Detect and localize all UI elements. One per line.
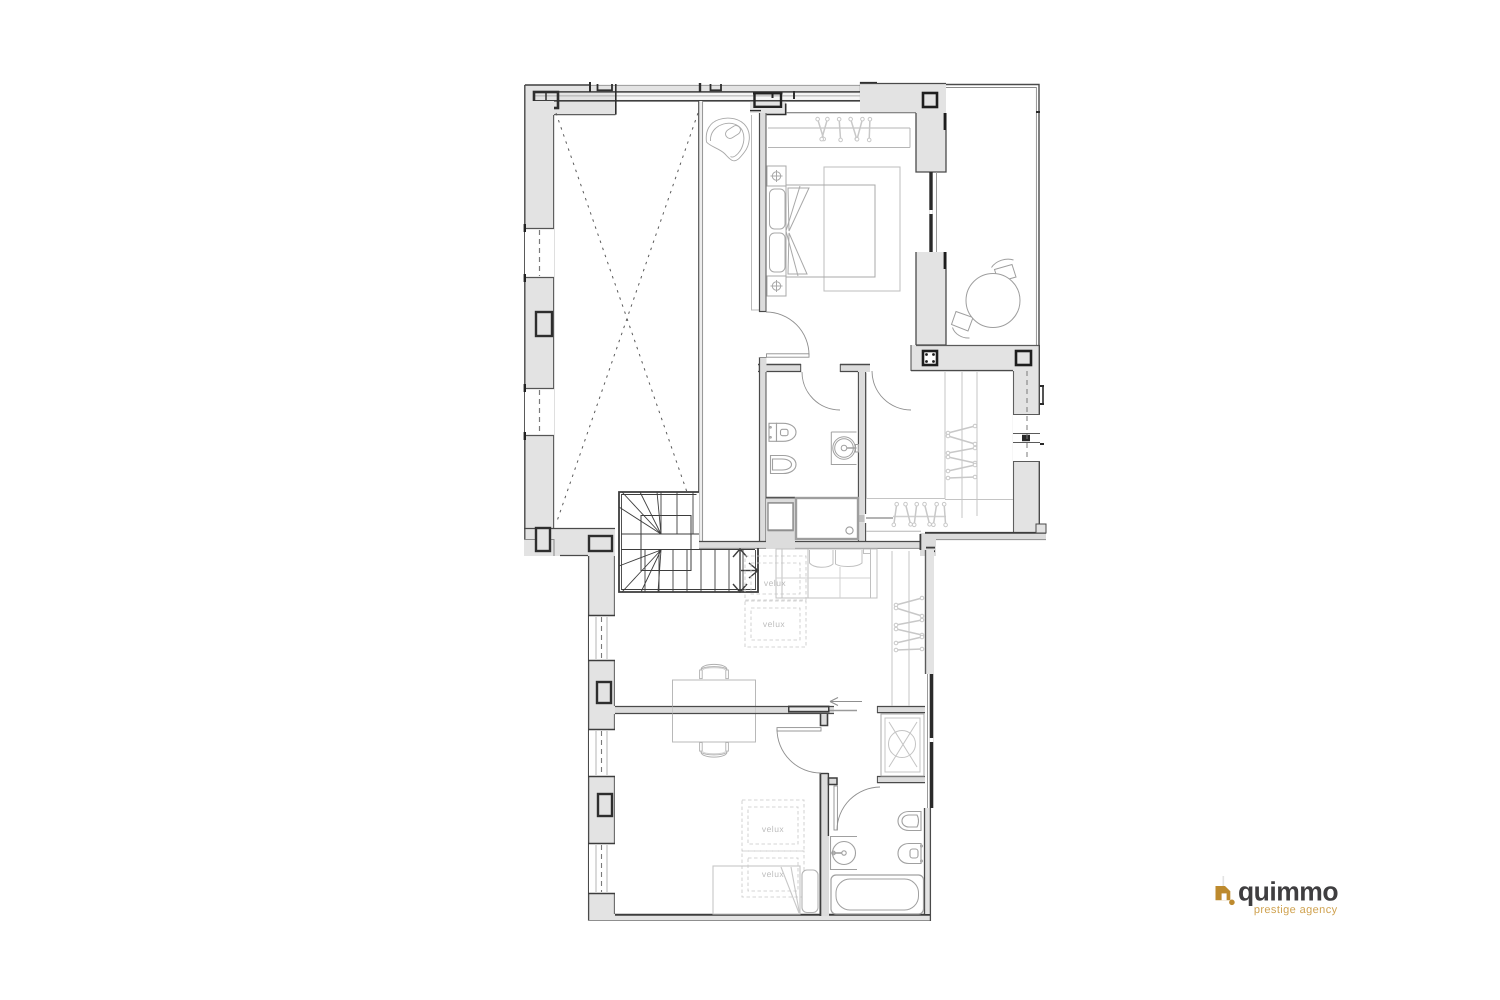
svg-text:velux: velux [764, 578, 787, 588]
svg-text:quimmo: quimmo [1238, 877, 1338, 907]
svg-text:velux: velux [762, 869, 785, 879]
svg-text:velux: velux [763, 619, 786, 629]
svg-text:velux: velux [762, 824, 785, 834]
svg-text:prestige agency: prestige agency [1254, 904, 1338, 916]
